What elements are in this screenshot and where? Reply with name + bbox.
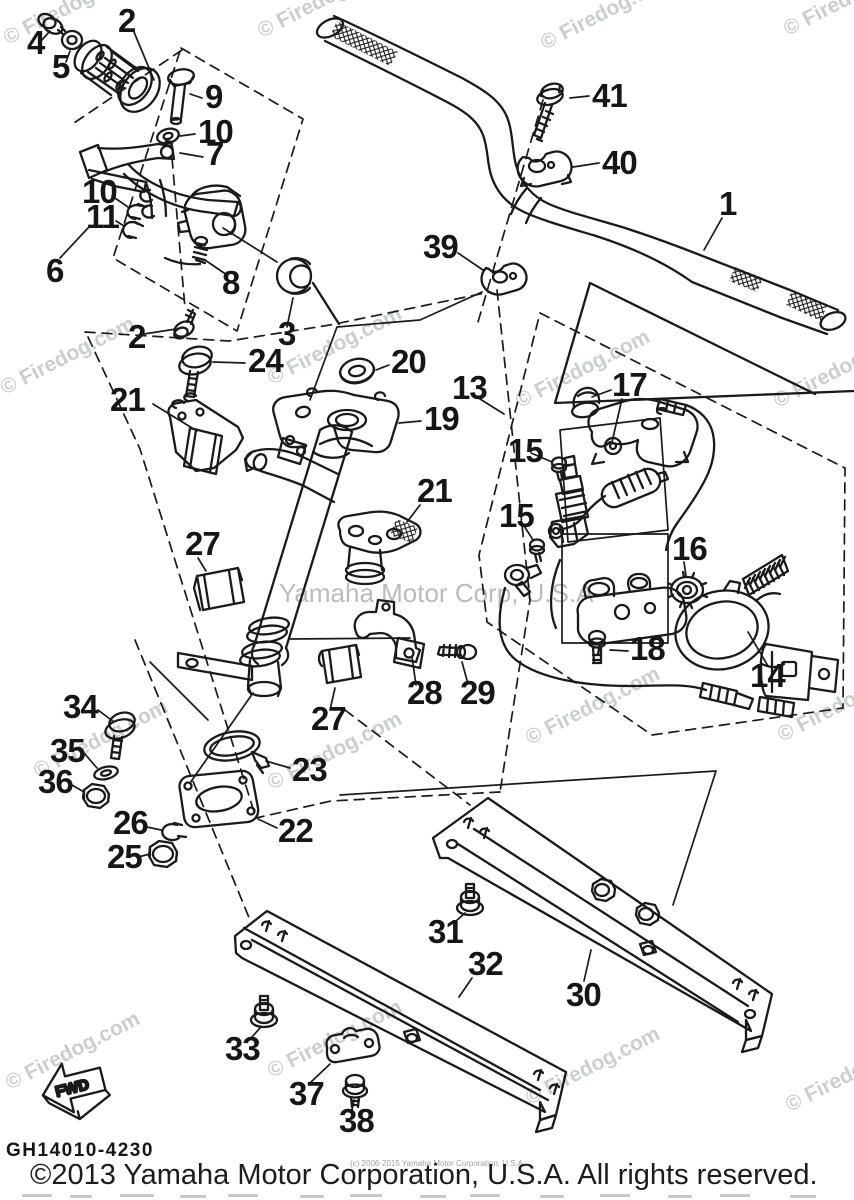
svg-text:32: 32 (468, 945, 503, 982)
svg-text:26: 26 (113, 804, 148, 841)
svg-text:16: 16 (672, 530, 707, 567)
svg-text:5: 5 (52, 48, 70, 85)
svg-text:18: 18 (630, 630, 665, 667)
svg-text:28: 28 (407, 674, 442, 711)
svg-text:11: 11 (86, 198, 120, 235)
svg-text:©2013 Yamaha Motor Corporation: ©2013 Yamaha Motor Corporation, U.S.A. A… (30, 1159, 818, 1191)
svg-text:15: 15 (508, 432, 543, 469)
svg-text:1: 1 (719, 185, 737, 222)
svg-text:2: 2 (128, 318, 146, 355)
svg-text:4: 4 (27, 24, 46, 61)
svg-text:33: 33 (225, 1030, 260, 1067)
svg-text:15: 15 (499, 497, 534, 534)
svg-text:2: 2 (118, 2, 136, 39)
svg-text:22: 22 (278, 812, 313, 849)
svg-text:24: 24 (248, 342, 284, 379)
svg-text:9: 9 (205, 78, 223, 115)
svg-text:38: 38 (339, 1102, 374, 1139)
svg-text:21: 21 (417, 472, 452, 509)
svg-text:40: 40 (602, 144, 637, 181)
svg-text:20: 20 (391, 343, 426, 380)
svg-text:29: 29 (460, 674, 495, 711)
svg-text:21: 21 (110, 381, 145, 418)
svg-text:7: 7 (206, 135, 223, 172)
svg-text:25: 25 (107, 838, 142, 875)
svg-text:34: 34 (63, 688, 99, 725)
svg-text:36: 36 (38, 763, 73, 800)
svg-text:14: 14 (750, 657, 786, 694)
svg-text:GH14010-4230: GH14010-4230 (6, 1140, 154, 1161)
svg-text:Yamaha Motor Corp, U.S.A: Yamaha Motor Corp, U.S.A (279, 578, 594, 608)
svg-text:23: 23 (292, 751, 327, 788)
svg-text:41: 41 (592, 77, 627, 114)
svg-text:27: 27 (311, 700, 346, 737)
svg-text:37: 37 (289, 1075, 324, 1112)
svg-text:27: 27 (185, 525, 220, 562)
svg-text:39: 39 (423, 228, 458, 265)
svg-text:8: 8 (222, 264, 240, 301)
svg-text:17: 17 (612, 366, 647, 403)
